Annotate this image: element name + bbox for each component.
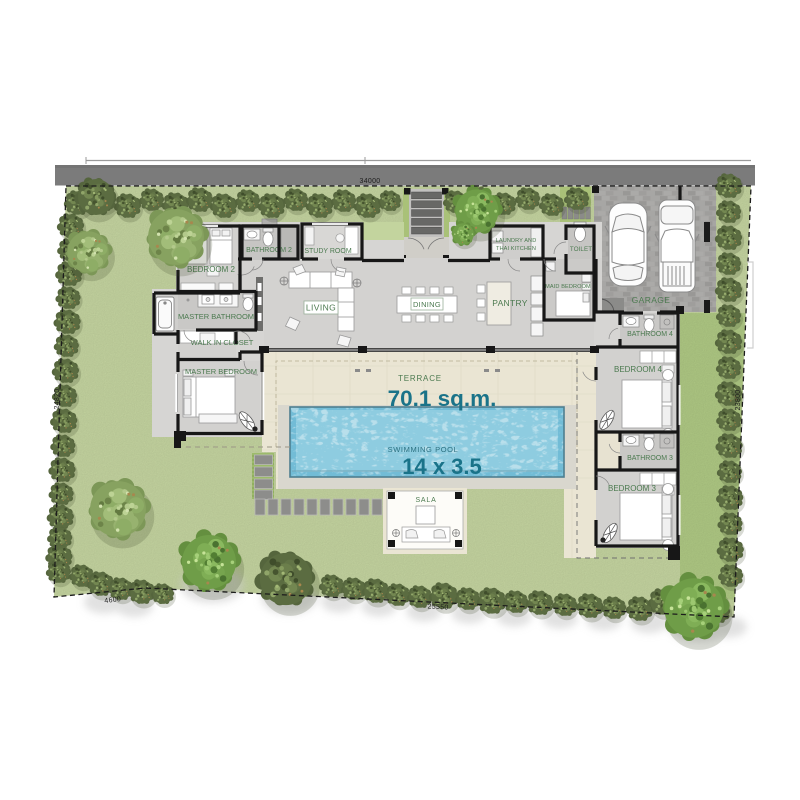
svg-text:GARAGE: GARAGE — [632, 295, 671, 305]
svg-text:BATHROOM 4: BATHROOM 4 — [627, 331, 673, 338]
svg-text:DINING: DINING — [413, 300, 441, 309]
svg-text:BEDROOM 3: BEDROOM 3 — [608, 484, 657, 493]
svg-text:SALA: SALA — [415, 497, 436, 504]
svg-text:BATHROOM 2: BATHROOM 2 — [246, 247, 292, 254]
svg-text:THAI KITCHEN: THAI KITCHEN — [496, 246, 536, 252]
svg-text:25550: 25550 — [427, 603, 448, 611]
svg-text:STUDY ROOM: STUDY ROOM — [304, 248, 351, 255]
svg-text:MASTER BATHROOM: MASTER BATHROOM — [178, 312, 254, 321]
svg-text:SWIMMING POOL: SWIMMING POOL — [388, 445, 459, 454]
svg-text:TERRACE: TERRACE — [398, 374, 442, 383]
svg-text:BATHROOM 3: BATHROOM 3 — [627, 455, 673, 462]
svg-text:WALK IN CLOSET: WALK IN CLOSET — [191, 338, 254, 347]
svg-text:MAID BEDROOM: MAID BEDROOM — [545, 284, 591, 290]
svg-text:23800: 23800 — [735, 390, 742, 411]
svg-text:BEDROOM 4: BEDROOM 4 — [614, 365, 663, 374]
svg-text:PANTRY: PANTRY — [492, 298, 528, 308]
svg-text:24820: 24820 — [54, 389, 61, 410]
svg-text:LAUNDRY AND: LAUNDRY AND — [496, 238, 537, 244]
svg-text:LIVING: LIVING — [306, 303, 336, 313]
svg-text:70.1 sq.m.: 70.1 sq.m. — [388, 386, 497, 411]
svg-text:TOILET: TOILET — [570, 246, 592, 253]
svg-text:14 x 3.5: 14 x 3.5 — [402, 454, 482, 479]
svg-text:34000: 34000 — [360, 178, 381, 185]
